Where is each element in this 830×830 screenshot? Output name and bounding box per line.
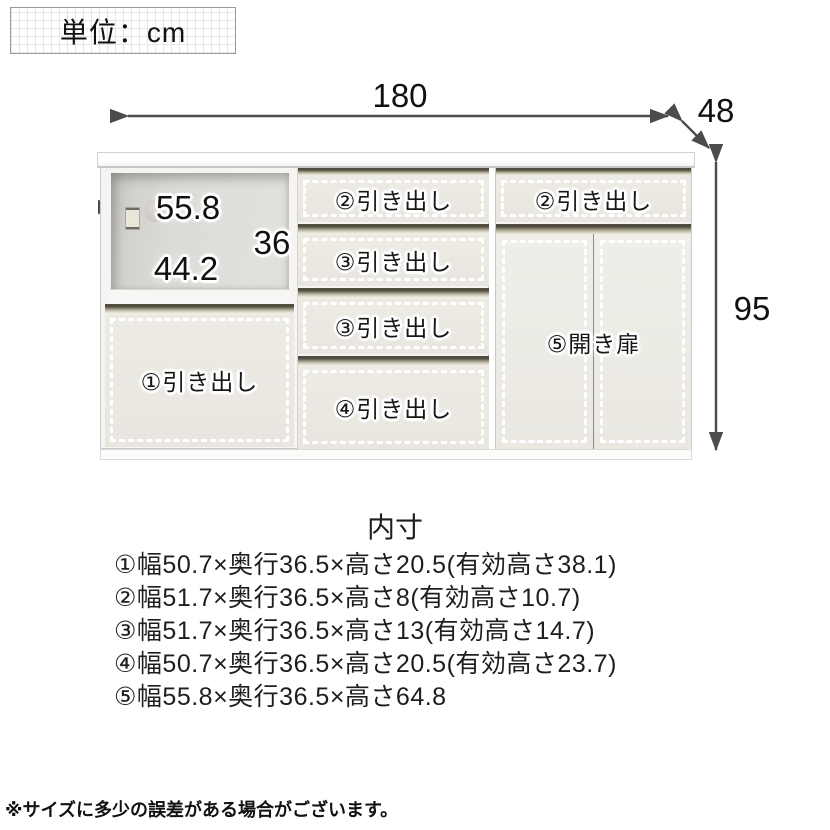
drawer-1-label: ①引き出し xyxy=(141,363,259,397)
drawer-1: ①引き出し xyxy=(105,304,294,447)
double-doors: ⑤開き扉 xyxy=(496,224,691,449)
drawer-grip xyxy=(298,224,489,233)
drawer-3b-front: ③引き出し xyxy=(298,297,489,354)
drawer-1-front: ①引き出し xyxy=(105,313,294,447)
right-column: ②引き出し ⑤開き扉 xyxy=(496,168,691,449)
inner-dimensions-heading: 内寸 xyxy=(330,506,460,546)
size-disclaimer: ※サイズに多少の誤差がある場合がございます。 xyxy=(5,796,398,822)
middle-column: ②引き出し ③引き出し ③引き出し xyxy=(298,168,489,449)
inner-dimension-item: ①幅50.7×奥行36.5×高さ20.5(有効高さ38.1) xyxy=(114,549,617,582)
drawer-2-middle-label: ②引き出し xyxy=(335,182,453,216)
door-panels: ⑤開き扉 xyxy=(496,234,691,449)
shelf-width-value: 55.8 xyxy=(128,191,248,224)
drawer-4-label: ④引き出し xyxy=(335,390,453,424)
unit-note-box: 単位：cm xyxy=(10,7,236,54)
door-label-wrap: ⑤開き扉 xyxy=(496,234,691,449)
unit-note-text: 単位：cm xyxy=(60,11,186,51)
drawer-2-right-label: ②引き出し xyxy=(535,182,653,216)
drawer-3a-front: ③引き出し xyxy=(298,233,489,286)
inner-dimension-item: ④幅50.7×奥行36.5×高さ20.5(有効高さ23.7) xyxy=(114,648,617,681)
drawer-2-right: ②引き出し xyxy=(496,168,691,222)
overall-depth-value: 48 xyxy=(686,94,746,127)
product-dimension-diagram: 単位：cm xyxy=(0,0,830,830)
doors-label: ⑤開き扉 xyxy=(547,325,641,359)
shelf-board xyxy=(109,289,290,305)
cabinet-base xyxy=(100,449,692,460)
overall-width-value: 180 xyxy=(340,79,460,112)
drawer-grip xyxy=(298,288,489,297)
drawer-2-middle-front: ②引き出し xyxy=(298,175,489,222)
drawer-3b-label: ③引き出し xyxy=(335,309,453,343)
inner-dimensions-list: ①幅50.7×奥行36.5×高さ20.5(有効高さ38.1) ②幅51.7×奥行… xyxy=(114,549,617,714)
drawer-grip xyxy=(496,168,691,175)
inner-dimension-item: ③幅51.7×奥行36.5×高さ13(有効高さ14.7) xyxy=(114,615,617,648)
drawer-3b: ③引き出し xyxy=(298,288,489,354)
drawer-2-right-front: ②引き出し xyxy=(496,175,691,222)
shelf-height-value: 36 xyxy=(242,226,302,259)
drawer-4: ④引き出し xyxy=(298,356,489,449)
overall-height-value: 95 xyxy=(722,292,782,325)
shelf-depth-value: 44.2 xyxy=(136,252,236,285)
inner-dimension-item: ②幅51.7×奥行36.5×高さ8(有効高さ10.7) xyxy=(114,582,617,615)
door-grip xyxy=(496,224,691,234)
inner-dimension-item: ⑤幅55.8×奥行36.5×高さ64.8 xyxy=(114,681,617,714)
counter-top xyxy=(97,152,695,168)
drawer-2-middle: ②引き出し xyxy=(298,168,489,222)
drawer-grip xyxy=(298,356,489,365)
drawer-3a-label: ③引き出し xyxy=(335,243,453,277)
drawer-4-front: ④引き出し xyxy=(298,365,489,449)
drawer-3a: ③引き出し xyxy=(298,224,489,286)
drawer-grip xyxy=(298,168,489,175)
drawer-grip xyxy=(105,304,294,313)
right-unit: ②引き出し ⑤開き扉 xyxy=(495,168,692,449)
